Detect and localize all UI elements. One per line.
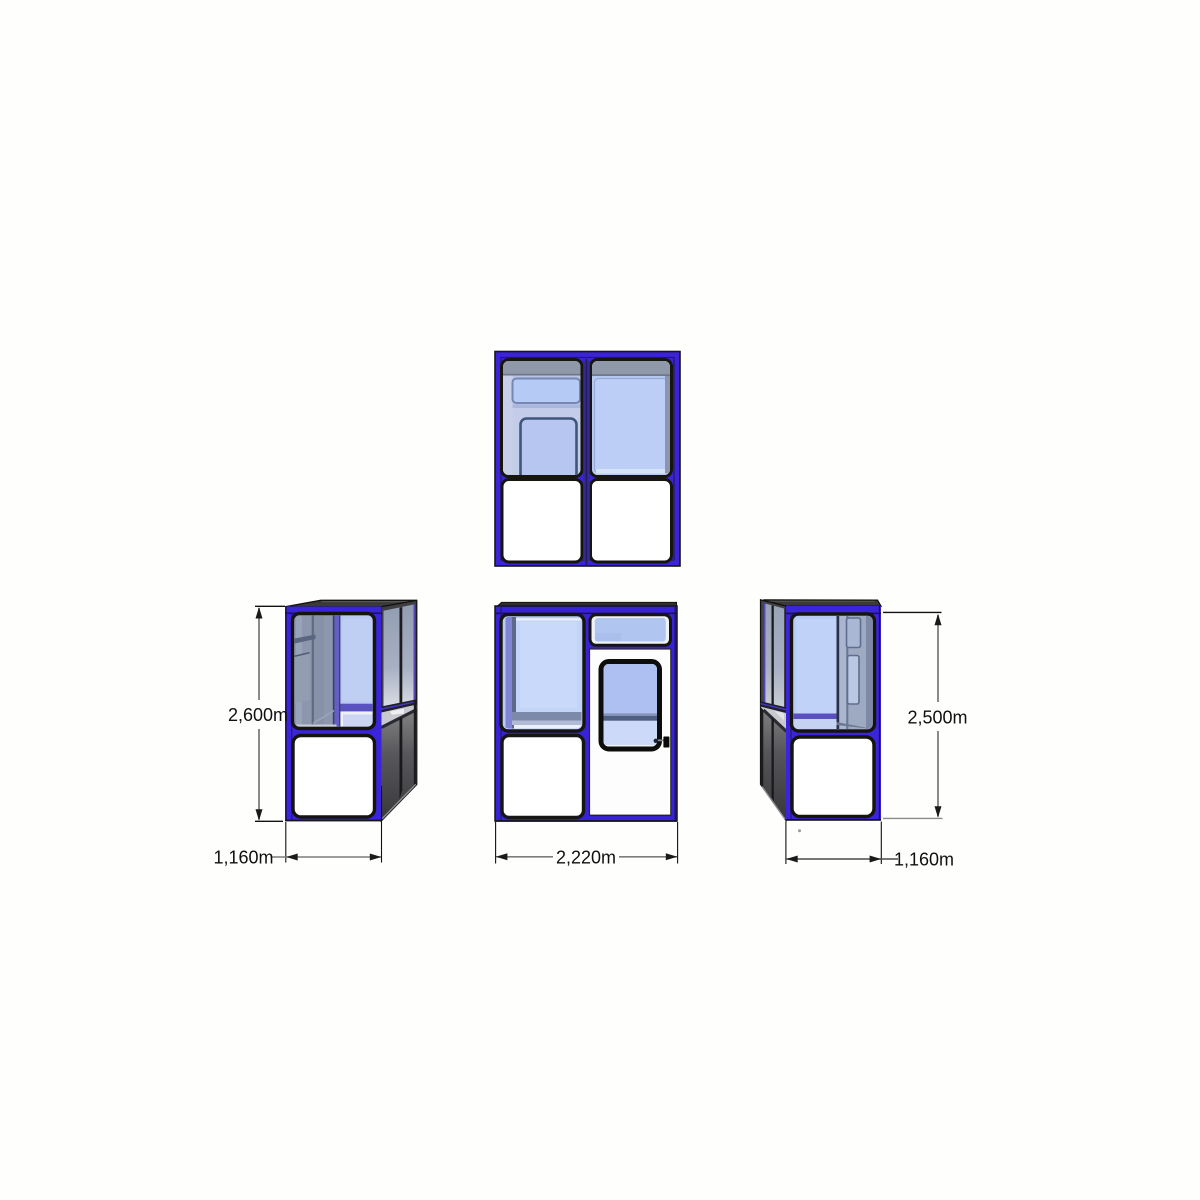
svg-text:1,160m: 1,160m xyxy=(213,848,273,868)
svg-text:1,160m: 1,160m xyxy=(894,850,954,870)
svg-text:2,220m: 2,220m xyxy=(556,848,616,868)
svg-text:2,500m: 2,500m xyxy=(907,708,967,728)
svg-text:2,600m: 2,600m xyxy=(228,705,288,725)
